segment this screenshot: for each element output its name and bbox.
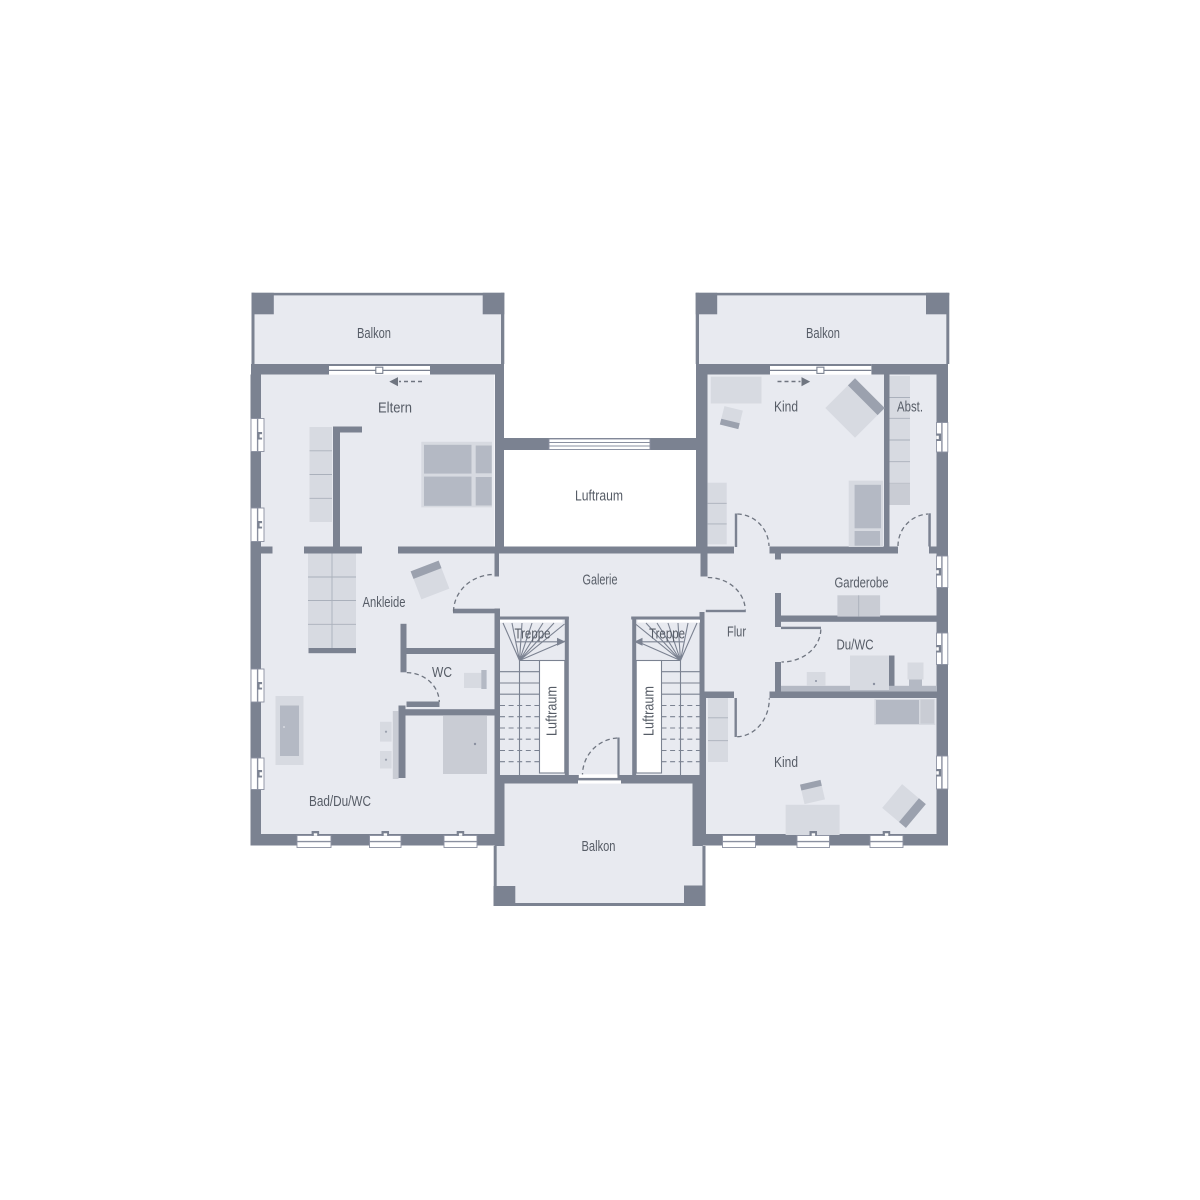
- svg-text:Ankleide: Ankleide: [363, 594, 406, 611]
- svg-text:Balkon: Balkon: [806, 325, 840, 342]
- svg-text:Flur: Flur: [727, 624, 746, 641]
- svg-text:Eltern: Eltern: [378, 400, 412, 417]
- svg-text:Balkon: Balkon: [357, 325, 391, 342]
- svg-text:Kind: Kind: [774, 754, 798, 771]
- svg-text:Luftraum: Luftraum: [544, 686, 561, 736]
- svg-text:Treppe: Treppe: [649, 626, 685, 643]
- svg-text:Balkon: Balkon: [582, 838, 616, 855]
- svg-text:Garderobe: Garderobe: [835, 575, 889, 592]
- svg-text:Kind: Kind: [774, 399, 798, 416]
- svg-text:Luftraum: Luftraum: [575, 488, 623, 505]
- svg-text:WC: WC: [432, 664, 452, 681]
- svg-text:Luftraum: Luftraum: [640, 686, 657, 736]
- svg-text:Bad/Du/WC: Bad/Du/WC: [309, 793, 371, 810]
- svg-text:Galerie: Galerie: [583, 572, 618, 589]
- svg-text:Abst.: Abst.: [897, 399, 923, 416]
- svg-text:Treppe: Treppe: [515, 626, 551, 643]
- svg-text:Du/WC: Du/WC: [837, 637, 874, 654]
